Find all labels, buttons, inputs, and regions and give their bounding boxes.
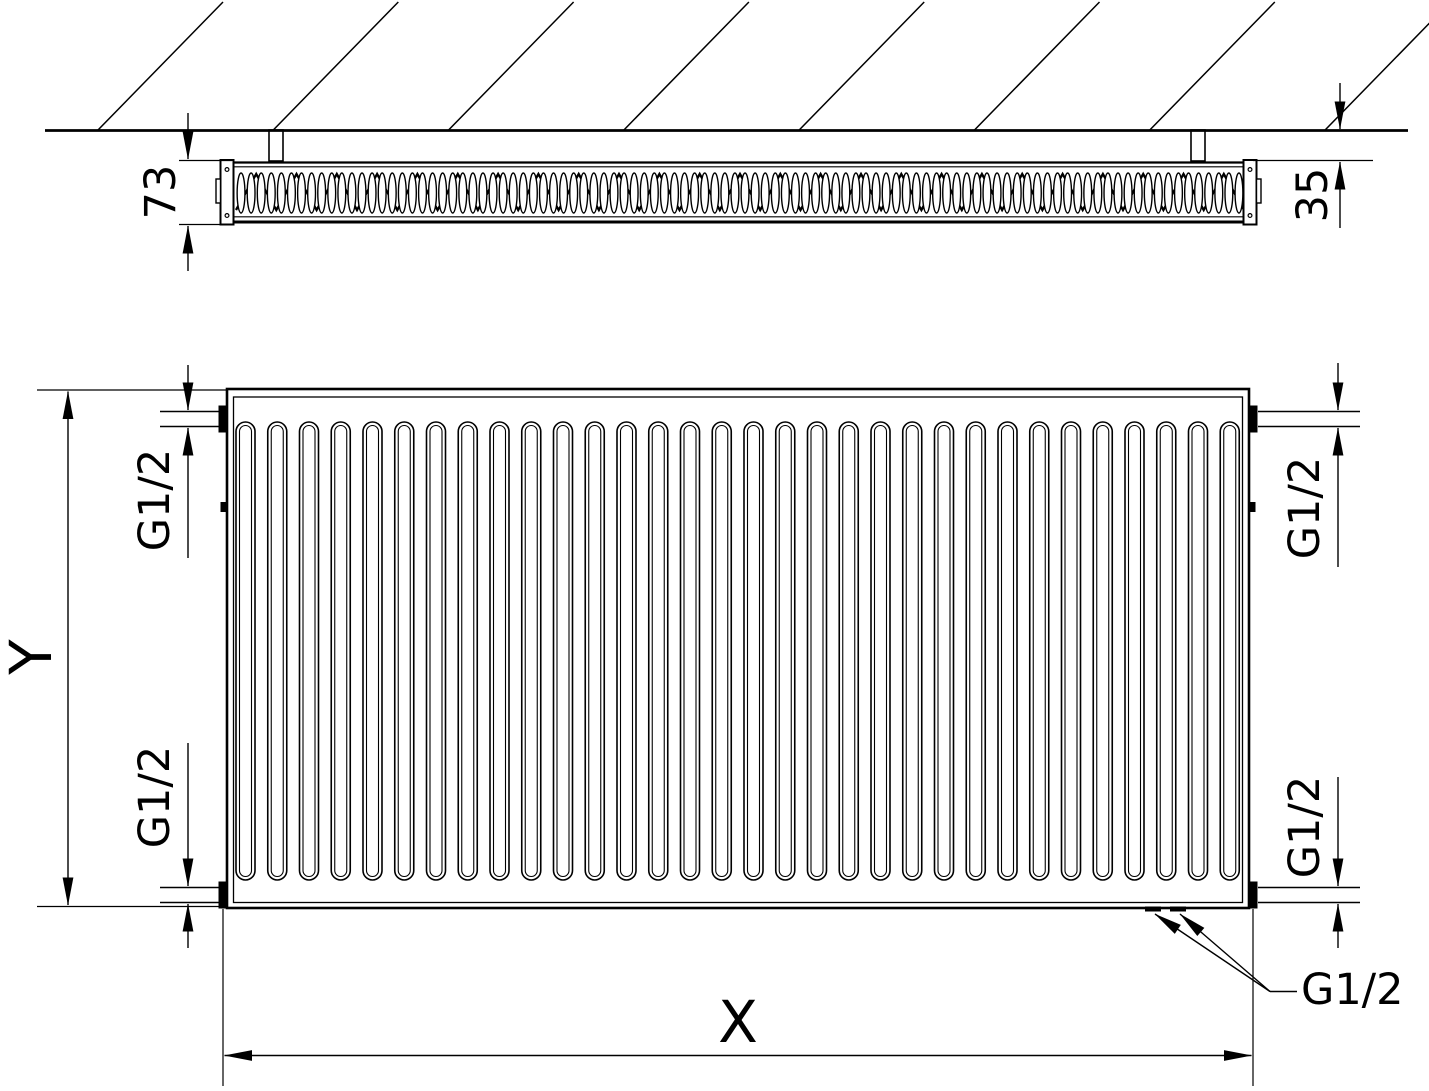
fin-loop [328, 173, 336, 213]
fin-loop [439, 173, 447, 213]
fin-loop [741, 173, 749, 213]
dim-label-width-X: X [718, 988, 758, 1056]
fin-loop [812, 173, 820, 213]
fin-loop [1114, 173, 1122, 213]
fin-loop [1094, 173, 1102, 213]
fin-loop [570, 173, 578, 213]
bottom-connection-notch [1145, 907, 1161, 912]
mounting-bracket-left [269, 130, 283, 161]
fin-loop [761, 173, 769, 213]
fin-loop [1235, 173, 1243, 213]
fin-loop [872, 173, 880, 213]
fin-loop [499, 173, 507, 213]
fin-loop [681, 173, 689, 213]
leader-arrow [1180, 914, 1270, 992]
fin-loop [449, 173, 457, 213]
fin-loop [550, 173, 558, 213]
fin-loop [469, 173, 477, 213]
fin-loop [1165, 173, 1173, 213]
fin-loop [288, 173, 296, 213]
thread-label-bottom-left: G1/2 [130, 746, 180, 849]
fin-loop [580, 173, 588, 213]
radiator-top-view [216, 130, 1261, 225]
fin-loop [419, 173, 427, 213]
fin-loop [368, 173, 376, 213]
fin-loop [993, 173, 1001, 213]
hatch-line [799, 2, 924, 130]
fin-loop [1205, 173, 1213, 213]
fin-loop [600, 173, 608, 213]
fin-loop [479, 173, 487, 213]
fin-loop [882, 173, 890, 213]
end-cap-tab-left [216, 179, 221, 203]
thread-label-bottom-right: G1/2 [1280, 776, 1330, 879]
thread-label-top-left: G1/2 [130, 449, 180, 552]
fin-loop [671, 173, 679, 213]
fin-loop [1023, 173, 1031, 213]
convector-fin-zigzag [236, 174, 1244, 210]
fin-loop [661, 173, 669, 213]
dim-label-wall-gap: 35 [1288, 168, 1338, 223]
fin-loop [237, 173, 245, 213]
fin-loop [1044, 173, 1052, 213]
bottom-connection-notch [1170, 907, 1186, 912]
fin-loop [318, 173, 326, 213]
fin-loop [771, 173, 779, 213]
fin-loop [892, 173, 900, 213]
fin-loop [943, 173, 951, 213]
fin-loop [620, 173, 628, 213]
fin-loop [610, 173, 618, 213]
thread-label-top-right: G1/2 [1280, 457, 1330, 560]
drawing-svg: 73 35 Y X G1/2 G1/2 G1/2 G1/2 G1/2 [0, 0, 1429, 1091]
fin-loop [378, 173, 386, 213]
fin-loop [953, 173, 961, 213]
thread-label-bottom-connections: G1/2 [1301, 965, 1404, 1015]
hatch-line [98, 2, 223, 130]
fin-loop [560, 173, 568, 213]
fin-loop [1033, 173, 1041, 213]
dim-label-depth: 73 [136, 165, 186, 220]
fin-loop [1195, 173, 1203, 213]
fin-loop [529, 173, 537, 213]
fin-loop [1215, 173, 1223, 213]
hatch-line [624, 2, 749, 130]
fin-loop [1074, 173, 1082, 213]
end-cap-left [221, 160, 234, 225]
fin-loop [923, 173, 931, 213]
side-tab-right [1249, 502, 1256, 512]
radiator-front-view [160, 389, 1360, 912]
end-cap-right [1244, 160, 1257, 225]
fin-loop [650, 173, 658, 213]
stub-collar-top-right [1248, 406, 1258, 433]
fin-loop [963, 173, 971, 213]
wall-hatching [98, 2, 1429, 130]
fin-loop [721, 173, 729, 213]
fin-loop [358, 173, 366, 213]
fin-loop [691, 173, 699, 213]
hatch-line [1150, 2, 1275, 130]
fin-loop [1104, 173, 1112, 213]
fin-loop [338, 173, 346, 213]
hatch-line [975, 2, 1100, 130]
hatch-line [449, 2, 574, 130]
end-cap-tab-right [1257, 179, 1262, 203]
fin-loop [398, 173, 406, 213]
fin-loop [913, 173, 921, 213]
fin-loop [1084, 173, 1092, 213]
fin-loop [792, 173, 800, 213]
fin-loop [902, 173, 910, 213]
stub-collar-bottom-left [219, 882, 229, 909]
fin-loop [1154, 173, 1162, 213]
fin-loop [842, 173, 850, 213]
dim-label-height-Y: Y [0, 639, 65, 676]
fin-loop [308, 173, 316, 213]
fin-loop [630, 173, 638, 213]
fin-loop [1064, 173, 1072, 213]
fin-loop [1185, 173, 1193, 213]
fin-loop [459, 173, 467, 213]
fin-loop [1003, 173, 1011, 213]
fin-loop [298, 173, 306, 213]
fin-loop [640, 173, 648, 213]
fin-loop [973, 173, 981, 213]
fin-loop [1124, 173, 1132, 213]
radiator-body-outline [227, 389, 1249, 908]
fin-loop [348, 173, 356, 213]
fin-loop [1013, 173, 1021, 213]
fin-loop [509, 173, 517, 213]
fin-loop [277, 173, 285, 213]
fin-loop [781, 173, 789, 213]
side-tab-left [221, 502, 228, 512]
fin-loop [267, 173, 275, 213]
fin-loop [711, 173, 719, 213]
fin-loop [832, 173, 840, 213]
fin-loop [731, 173, 739, 213]
fin-loop [388, 173, 396, 213]
stub-collar-top-left [219, 406, 229, 433]
hatch-line [273, 2, 398, 130]
fin-loop [802, 173, 810, 213]
fin-loop [590, 173, 598, 213]
fin-loop [1134, 173, 1142, 213]
fin-loop [983, 173, 991, 213]
fin-loop [429, 173, 437, 213]
fin-loop [1225, 173, 1233, 213]
fin-loop [933, 173, 941, 213]
fin-loop [701, 173, 709, 213]
fin-loop [1144, 173, 1152, 213]
fin-loop [852, 173, 860, 213]
fin-loop [540, 173, 548, 213]
fin-loop [862, 173, 870, 213]
fin-loop [409, 173, 417, 213]
fin-loop [751, 173, 759, 213]
fin-loop [489, 173, 497, 213]
fin-loop [519, 173, 527, 213]
fin-loop [822, 173, 830, 213]
mounting-bracket-right [1191, 130, 1205, 161]
fin-loop [1054, 173, 1062, 213]
fin-loop [257, 173, 265, 213]
stub-collar-bottom-right [1248, 882, 1258, 909]
radiator-dimension-drawing: 73 35 Y X G1/2 G1/2 G1/2 G1/2 G1/2 [0, 0, 1429, 1091]
fin-loop [1175, 173, 1183, 213]
fin-loop [247, 173, 255, 213]
